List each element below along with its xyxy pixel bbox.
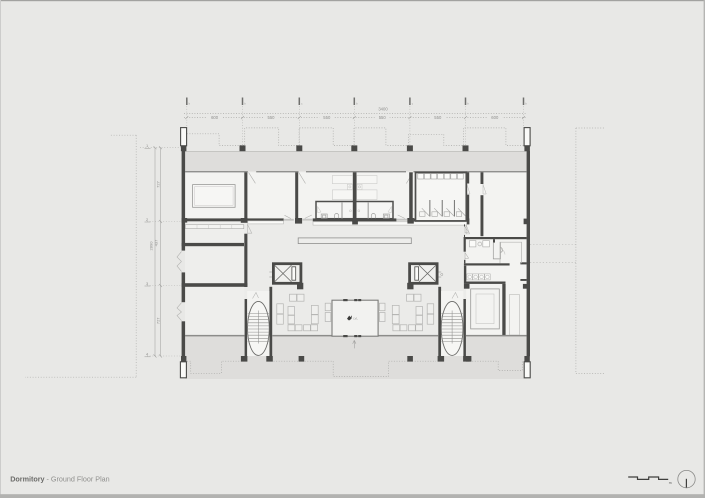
svg-text:m: m xyxy=(669,481,672,485)
svg-text:437: 437 xyxy=(154,239,159,246)
svg-text:550: 550 xyxy=(268,115,276,120)
svg-text:600: 600 xyxy=(491,115,499,120)
svg-text:727: 727 xyxy=(155,317,160,324)
svg-text:727: 727 xyxy=(155,180,160,187)
svg-text:550: 550 xyxy=(323,115,331,120)
svg-text:550: 550 xyxy=(379,115,387,120)
svg-text:3400: 3400 xyxy=(378,107,388,112)
svg-text:550: 550 xyxy=(434,115,442,120)
svg-text:600: 600 xyxy=(211,115,219,120)
svg-text:Dormitory - Ground Floor Plan: Dormitory - Ground Floor Plan xyxy=(10,474,109,483)
svg-text:LVL: LVL xyxy=(353,317,358,321)
